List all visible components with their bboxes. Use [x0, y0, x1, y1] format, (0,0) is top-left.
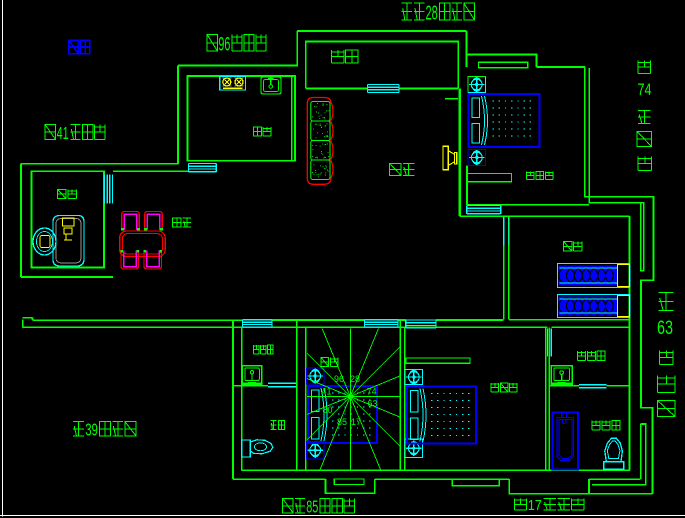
svg-text:80: 80: [323, 405, 333, 415]
svg-text:39: 39: [85, 420, 98, 440]
svg-text:85: 85: [306, 497, 318, 517]
svg-text:63: 63: [657, 318, 673, 339]
svg-text:85: 85: [337, 417, 347, 427]
svg-text:41: 41: [57, 123, 69, 143]
svg-text:28: 28: [426, 3, 438, 25]
svg-text:17: 17: [351, 417, 361, 427]
svg-text:96: 96: [334, 374, 344, 384]
svg-text:74: 74: [367, 387, 377, 397]
svg-text:17: 17: [528, 498, 542, 514]
svg-text:96: 96: [218, 34, 230, 56]
svg-text:28: 28: [350, 374, 360, 384]
svg-text:74: 74: [638, 80, 652, 99]
svg-text:63: 63: [368, 399, 378, 409]
svg-text:41: 41: [322, 387, 332, 397]
